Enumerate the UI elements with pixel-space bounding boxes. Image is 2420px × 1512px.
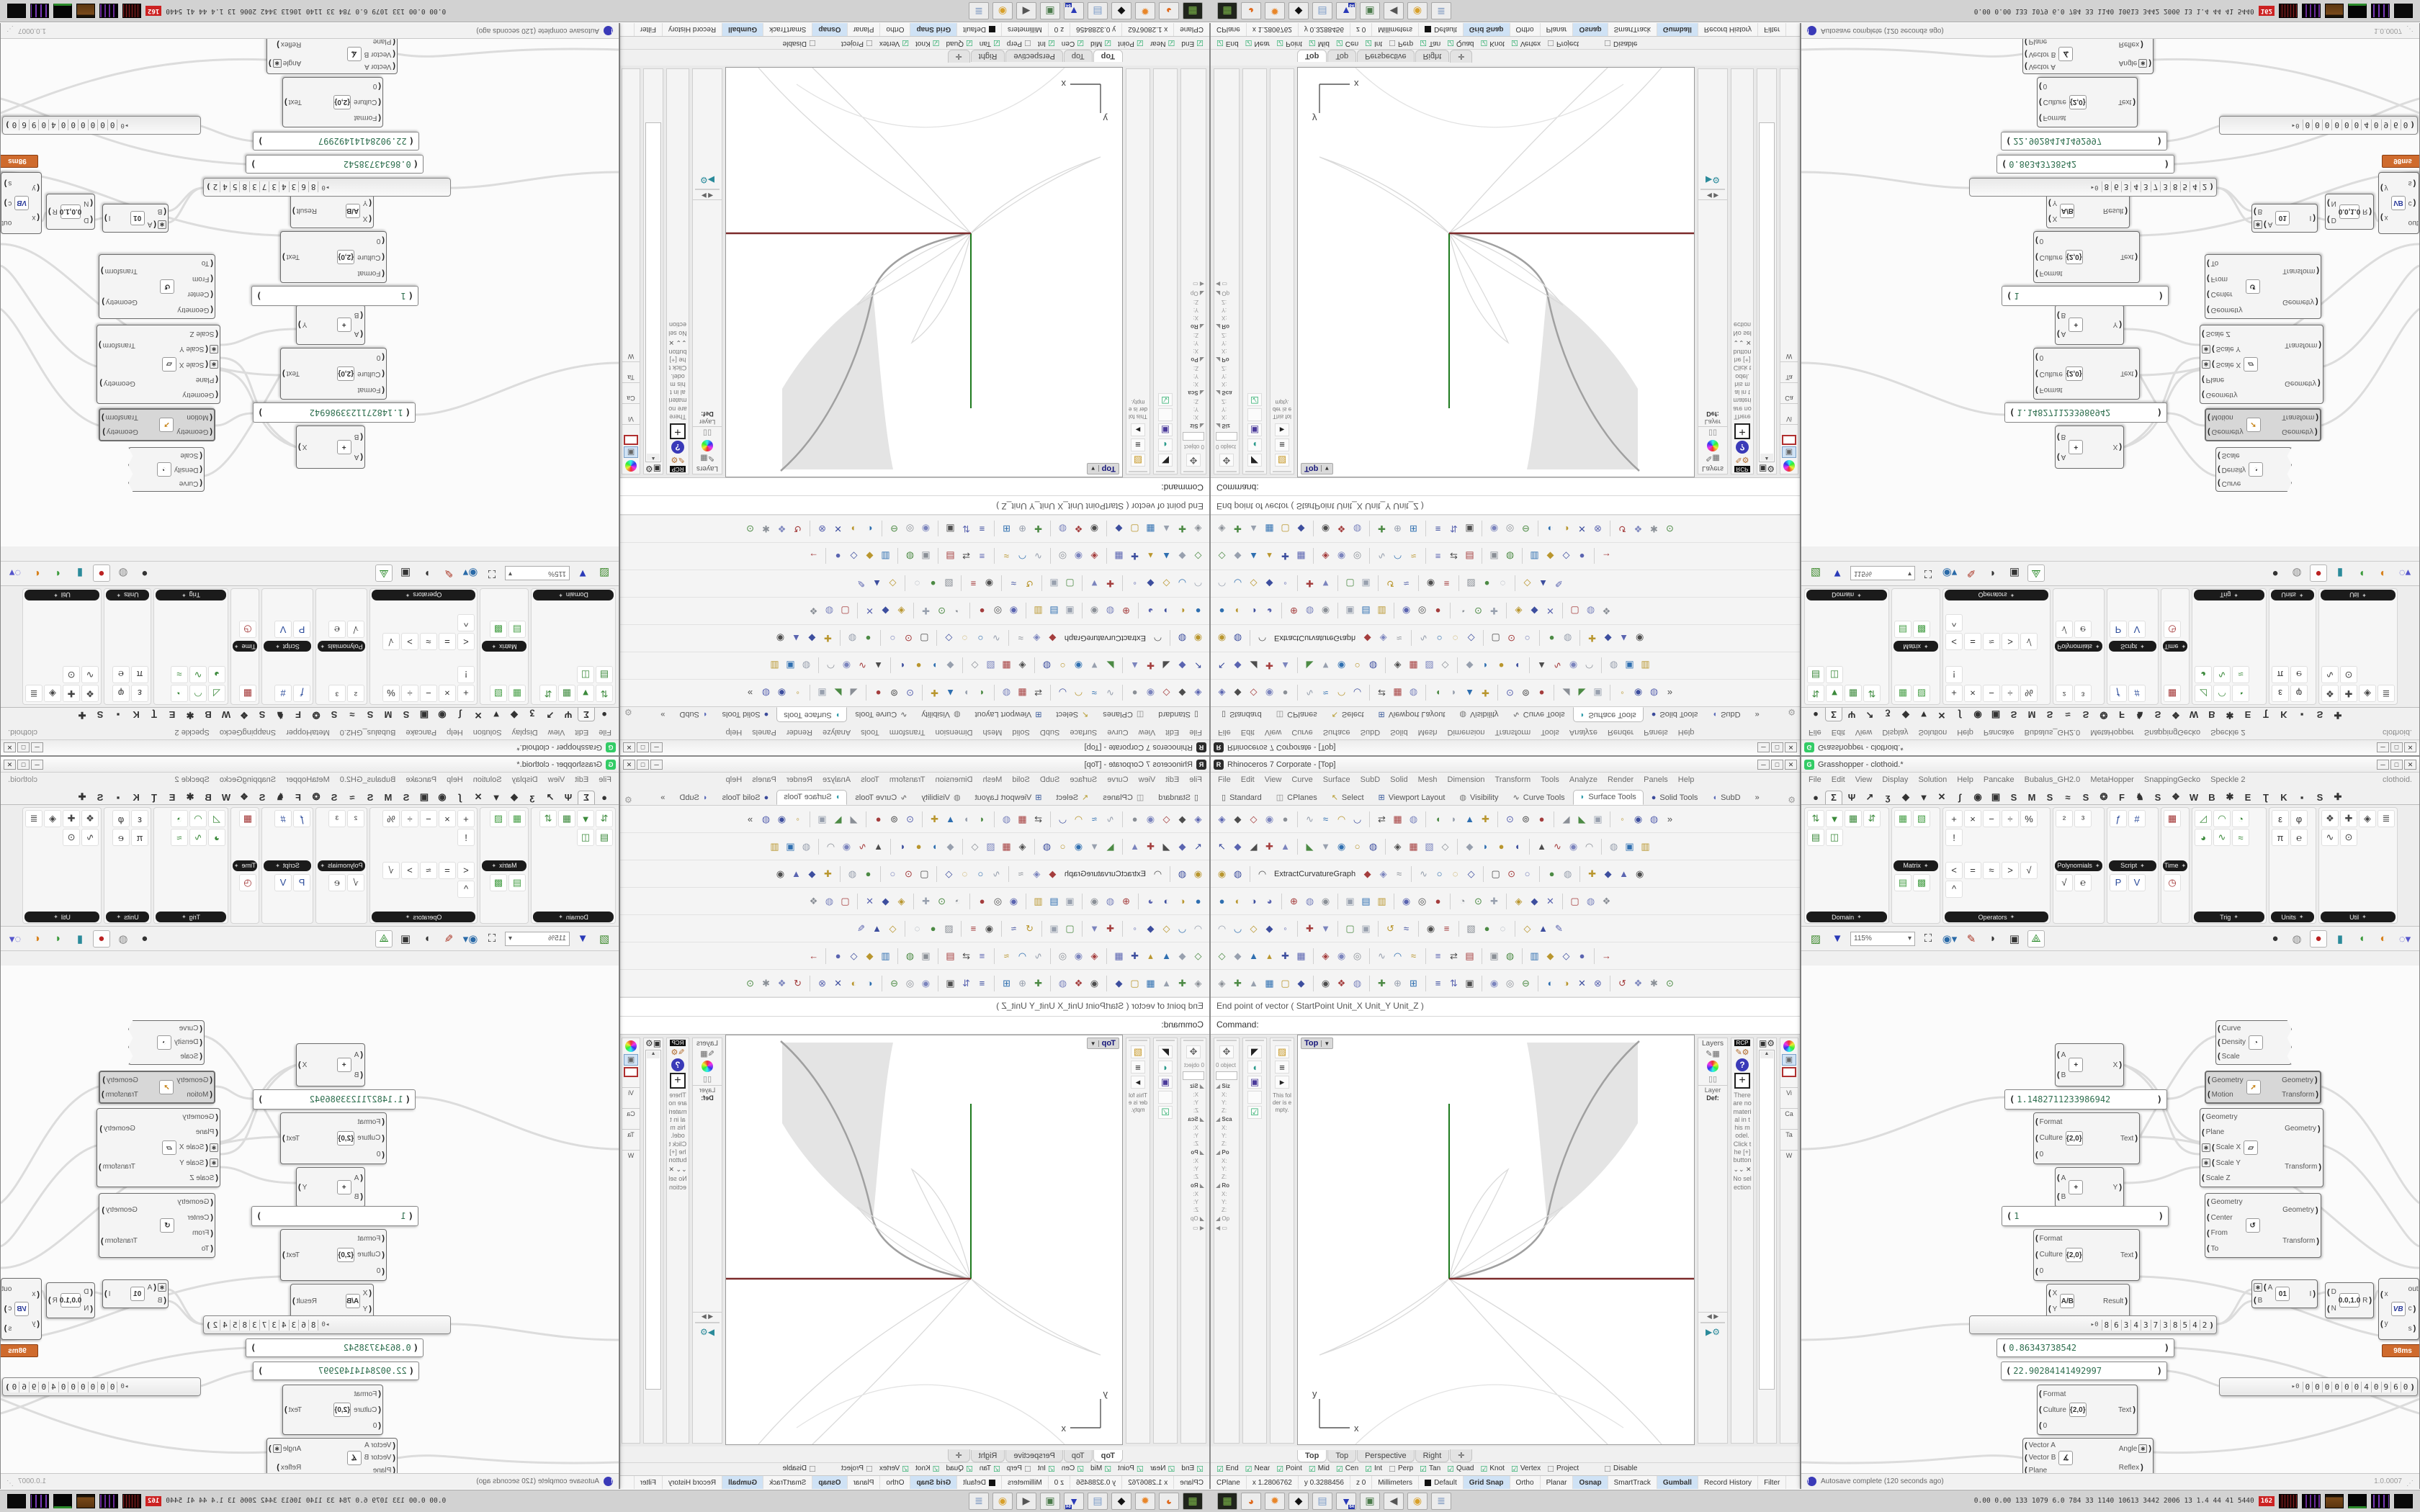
input-port[interactable]: ( [2039,98,2042,107]
menu-item-curve[interactable]: Curve [1107,775,1128,784]
toolbar-icon[interactable]: ▦ [1000,659,1013,672]
status-ortho[interactable]: Ortho [1510,1476,1541,1490]
toolbar-icon[interactable]: ◆ [1175,949,1189,963]
toolbar-icon[interactable]: ✚ [919,894,933,908]
input-port[interactable]: ( [2048,1305,2051,1313]
gh-tab-16[interactable]: ❂ [2095,791,2112,804]
expand-right-icon[interactable]: ▸ [1275,423,1289,436]
osnap-toggle-quad[interactable]: ☑Quad [946,1464,973,1474]
education-icon[interactable]: ◤ [1247,454,1262,467]
toolbar-icon[interactable]: ◇ [1160,812,1173,826]
toolbar-icon[interactable]: ▲ [1535,659,1549,672]
toolbar-icon[interactable]: ◆ [1112,522,1126,536]
input-port[interactable]: ( [360,1050,363,1059]
toolbar-icon[interactable]: ◗ [959,686,973,700]
toolbar-icon[interactable]: ◆ [1543,949,1557,963]
output-port[interactable]: ) [256,1211,261,1221]
camera-prop-icon[interactable]: ▣ [624,446,638,458]
node-rotate[interactable]: (Geometry(Center(From(To↺Geometry)Transf… [2205,254,2321,319]
toolbar-icon[interactable]: ▤ [1463,949,1476,963]
toolbar-icon[interactable]: ▣ [1623,659,1636,672]
toolbar-icon[interactable]: ◍ [1040,840,1054,853]
toolbar-gear-icon[interactable]: ⚙ [624,795,632,805]
toolbar-icon[interactable]: ✚ [1303,922,1317,935]
osnap-toggle-tan[interactable]: ☑Tan [980,38,1000,48]
red-rect-icon[interactable] [1782,1067,1796,1077]
boxedit-panel[interactable]: ✥ 0 object ◢ SizX:Y:Z:◢ ScaX:Y:Z:◢ PoX:Y… [1180,68,1206,474]
options-section[interactable]: ◢ Op [1181,1214,1206,1223]
input-port[interactable]: ( [2039,114,2042,122]
status-y-0-3288456[interactable]: y 0.3288456 [1070,22,1121,36]
input-port[interactable]: ( [369,1289,372,1297]
toolbar-icon[interactable]: ⊕ [1391,976,1404,990]
component-icon[interactable]: − [1983,685,2000,702]
status-y-0-3288456[interactable]: y 0.3288456 [1299,1476,1350,1490]
maximize-button[interactable]: □ [1771,743,1783,753]
save-file-icon[interactable]: ▼ [574,565,591,582]
folder-icon[interactable]: ▨ [1275,454,1289,467]
close-button[interactable]: ✕ [4,743,16,753]
component-icon[interactable]: ▦ [508,685,526,702]
input-port[interactable]: ( [90,1305,93,1313]
toolbar-icon[interactable]: ▧ [942,922,956,935]
layer-tools-icons[interactable]: ✎▦ [1698,454,1727,463]
gh-tab-17[interactable]: F [290,791,307,804]
component-icon[interactable]: ◷ [2164,621,2181,639]
node-rotate[interactable]: (Geometry(Center(From(To↺Geometry)Transf… [99,1193,215,1258]
input-port[interactable]: ( [2202,390,2205,399]
toolbar-icon[interactable]: ≡ [975,949,989,963]
toolbar-tab-»[interactable]: » [1749,707,1766,721]
toolbar-icon[interactable]: ◈ [1191,522,1205,536]
toolbar-icon[interactable]: ◆ [1046,867,1059,881]
properties-sliver-panel[interactable]: ▣ ViCaTaW [1780,68,1798,474]
panel-value-c[interactable]: (0.86343738542) [246,155,423,174]
boxedit-panel[interactable]: ✥ 0 object ◢ SizX:Y:Z:◢ ScaX:Y:Z:◢ PoX:Y… [1180,1038,1206,1444]
toolbar-icon[interactable]: ▲ [944,686,957,700]
menu-item-view[interactable]: View [1265,775,1282,784]
properties-sliver-panel[interactable]: ▣ ViCaTaW [622,68,640,474]
layer-pages-icon[interactable]: ▯▯ [1698,1074,1727,1084]
toolbar-icon[interactable]: ◈ [1088,949,1101,963]
toolbar-icon[interactable]: ⊕ [1016,976,1029,990]
component-icon[interactable]: ◕ [208,666,225,683]
toolbar-icon[interactable]: ≈ [1000,549,1013,563]
prop-section-ta[interactable]: Ta [622,1129,640,1140]
component-body-icon[interactable]: {2,0} [333,1403,351,1417]
toolbar-icon[interactable]: ◑ [1160,604,1173,618]
toolbar-icon[interactable]: ⊙ [1471,894,1485,908]
viewport-top[interactable]: Top ▼ [1297,1035,1695,1445]
slider-digit[interactable]: 4 [2190,1320,2200,1331]
toolbar-icon[interactable]: ◉ [1319,976,1332,990]
component-icon[interactable]: ▦ [239,810,256,827]
toolbar-icon[interactable]: ◇ [1191,549,1205,563]
output-port[interactable]: ) [2410,1382,2415,1392]
hamburger-icon[interactable]: ≡ [1275,1061,1289,1074]
component-icon[interactable]: ℮ [112,666,130,683]
dome-icon[interactable]: ◖ [1158,438,1173,451]
toolbar-icon[interactable]: ◇ [1160,686,1173,700]
input-port[interactable]: ( [210,428,212,436]
component-icon[interactable]: ◷ [239,621,256,639]
toolbar-icon[interactable]: ✚ [1128,949,1142,963]
camera-panel-icon[interactable]: ▶⚙ [1698,175,1727,185]
toolbar-tab-standard[interactable]: ▯Standard [1215,707,1268,721]
layer-color-wheel-icon[interactable] [1707,1061,1718,1072]
toolbar-icon[interactable]: ✚ [1144,840,1157,853]
component-body-icon[interactable]: A/B [2060,204,2074,218]
section-sca[interactable]: ◢ Sca [1214,1115,1239,1124]
slider-digit[interactable]: 3 [2121,1320,2131,1331]
input-port[interactable]: ( [210,305,213,314]
monitor-icon[interactable]: ▣⚙ [1757,1038,1776,1048]
toolbar-icon[interactable]: ▢ [1063,577,1077,590]
output-port[interactable]: ) [99,341,102,350]
output-port[interactable]: ) [2414,199,2416,207]
output-port[interactable]: ) [2119,443,2122,451]
toolbar-icon[interactable]: ⇄ [1447,949,1461,963]
input-port[interactable]: ( [382,236,385,245]
toolbar-icon[interactable]: ▼ [1088,659,1101,672]
toolbar-icon[interactable]: ◣ [1303,840,1317,853]
slider-digit[interactable]: 3 [290,182,300,193]
toolbar-icon[interactable]: ❖ [1335,976,1348,990]
toolbar-icon[interactable]: ◉ [1144,812,1157,826]
toolbar-icon[interactable]: ▣ [1359,577,1373,590]
input-port[interactable]: ( [215,1174,218,1182]
toolbar-icon[interactable]: ▥ [768,840,781,853]
toolbar-icon[interactable]: ● [1191,604,1205,618]
node-angle[interactable]: (Vector A(Vector B(Plane∡Angle✱)Reflex) [266,1438,398,1473]
input-port[interactable]: ( [2025,1441,2027,1450]
red-rect-icon[interactable] [1782,435,1796,445]
panel-grip[interactable] [1216,469,1237,472]
component-icon[interactable]: ▤ [1807,666,1824,683]
osnap-toggle-vertex[interactable]: ☑Vertex [879,1464,909,1474]
toolbar-icon[interactable]: ↖ [1215,659,1229,672]
toolbar-icon[interactable]: » [1663,812,1677,826]
status-planar[interactable]: Planar [1541,1476,1574,1490]
gh-tab-11[interactable]: S [2005,791,2022,804]
input-port[interactable]: ( [215,1128,218,1137]
toolbar-icon[interactable]: ✚ [1263,659,1276,672]
component-icon[interactable]: ▩ [490,874,507,891]
osnap-toggle-near[interactable]: ☑Near [1150,1464,1175,1474]
toolbar-icon[interactable]: ◦ [1128,922,1142,935]
toolbar-icon[interactable]: ◑ [1247,894,1260,908]
toolbar-icon[interactable]: ⇄ [1447,549,1461,563]
status-millimeters[interactable]: Millimeters [1372,22,1419,36]
status-gumball[interactable]: Gumball [722,1476,763,1490]
output-port[interactable]: ) [2157,136,2162,146]
toolbar-icon[interactable]: ◈ [1088,549,1101,563]
toolbar-tab-select[interactable]: ↖Select [1050,707,1095,721]
toolbar-icon[interactable]: ◈ [1512,894,1525,908]
input-port[interactable]: ( [2025,1454,2027,1462]
toolbar-icon[interactable]: ↖ [1215,840,1229,853]
menu-item-subd[interactable]: SubD [1361,728,1381,737]
menu-item-display[interactable]: Display [1882,728,1908,737]
toolbar-icon[interactable]: ◡ [1056,812,1070,826]
toolbar-icon[interactable]: ◆ [1263,922,1276,935]
toolbar-tab-surface-tools[interactable]: ◗Surface Tools [776,790,847,805]
solid-teal-icon[interactable]: ▮ [2331,930,2349,948]
toolbar-icon[interactable]: ▼ [1319,840,1332,853]
node-move[interactable]: (Geometry(Motion➚Geometry)Transform) [2205,408,2321,441]
toolbar-icon[interactable]: ▴ [1263,549,1276,563]
component-icon[interactable]: ÷ [401,685,418,702]
toolbar-icon[interactable]: ◡ [1350,812,1364,826]
ribbon-group-label[interactable]: Polynomials✦ [318,860,365,871]
toolbar-icon[interactable]: ▧ [1464,922,1478,935]
toolbar-icon[interactable]: ▦ [1263,522,1276,536]
output-port[interactable]: ) [2410,121,2415,130]
panel-grip[interactable] [1216,1040,1237,1043]
toolbar-icon[interactable]: ◇ [886,922,900,935]
viewport-tab-✛[interactable]: ✛ [948,50,970,63]
toolbar-icon[interactable]: ▣ [1063,604,1077,618]
input-port[interactable]: ( [215,330,218,338]
toolbar-icon[interactable]: ◆ [1528,894,1541,908]
toolbar-icon[interactable]: ◉ [1088,894,1101,908]
solid-orange-icon[interactable]: ◐ [2375,930,2392,948]
panel-value-b[interactable]: (1) [2002,1206,2169,1226]
node-text-format-3[interactable]: (Format(Culture(0{2,0}Text) [2037,77,2138,127]
component-icon[interactable]: ^ [457,881,475,898]
gh-tab-16[interactable]: ❂ [2095,708,2112,721]
toolbar-icon[interactable]: ● [975,604,989,618]
toolbar-icon[interactable]: ⊕ [1119,604,1133,618]
toolbar-icon[interactable]: ● [1535,686,1549,700]
toolbar-icon[interactable]: ✕ [1543,604,1557,618]
gh-tab-10[interactable]: ▣ [1987,791,2004,804]
display-icon[interactable]: ▣ [1040,3,1060,20]
component-body-icon[interactable]: ↺ [2246,1218,2260,1233]
input-port[interactable]: ( [378,1390,381,1398]
preview-shaded-icon[interactable]: ● [2310,930,2327,948]
dome-icon[interactable]: ◖ [1247,438,1262,451]
toolbar-icon[interactable]: ◉ [1215,631,1229,645]
gh-tab-6[interactable]: ▼ [488,708,505,721]
gh-tab-2[interactable]: Ψ [1843,791,1860,804]
toolbar-icon[interactable]: ▲ [789,867,803,881]
menu-item-dimension[interactable]: Dimension [1448,728,1485,737]
component-icon[interactable]: ❖ [81,685,99,702]
menu-item-dimension[interactable]: Dimension [1448,775,1485,784]
input-port[interactable]: ( [382,1117,385,1126]
gh-tab-28[interactable]: S [91,708,109,721]
status-x-1-2806762[interactable]: x 1.2806762 [1247,22,1299,36]
status-ortho[interactable]: Ortho [879,1476,910,1490]
gh-tab-19[interactable]: S [2149,791,2166,804]
toolbar-icon[interactable]: ◉ [1072,949,1085,963]
toolbar-icon[interactable]: ❖ [1072,976,1085,990]
toolbar-icon[interactable]: ✚ [1487,894,1501,908]
component-icon[interactable]: ℮ [112,829,130,846]
component-icon[interactable]: ε [2272,685,2289,702]
toolbar-icon[interactable]: ▲ [1247,976,1260,990]
toolbar-tab-cplanes[interactable]: ◫CPlanes [1270,791,1324,805]
pad-icon[interactable]: ▦ [1217,1493,1237,1510]
open-file-icon[interactable]: ▨ [596,930,613,948]
menu-item-solution[interactable]: Solution [1918,775,1947,784]
ribbon-group-label[interactable]: Polynomials✦ [2055,860,2102,871]
toolbar-icon[interactable]: ◍ [846,867,859,881]
toolbar-icon[interactable]: ▲ [1536,922,1550,935]
input-port[interactable]: ( [2207,1229,2210,1238]
toolbar-icon[interactable]: ◠ [1391,949,1404,963]
menu-item-subd[interactable]: SubD [1040,728,1060,737]
gh-tab-13[interactable]: S [2041,791,2058,804]
output-port[interactable]: ) [298,1183,301,1192]
gh-tab-2[interactable]: Ψ [1843,708,1860,721]
slider-digit[interactable]: 5 [2180,1320,2190,1331]
toolbar-tab-surface-tools[interactable]: ◗Surface Tools [1573,707,1644,722]
output-port[interactable]: ) [206,183,211,192]
component-icon[interactable]: ∿ [189,666,207,683]
toolbar-icon[interactable]: ◆ [1263,577,1276,590]
dome-icon[interactable]: ◖ [1158,1061,1173,1074]
toolbar-icon[interactable]: ◉ [1072,840,1085,853]
component-icon[interactable]: ε [131,810,148,827]
component-icon[interactable]: ≣ [25,685,42,702]
input-port[interactable]: ( [2207,274,2210,283]
toolbar-icon[interactable]: ▥ [879,949,892,963]
menu-item-file[interactable]: File [599,728,611,737]
node-text-format-2[interactable]: (Format(Culture(0{2,0}Text) [280,1229,387,1281]
viewport-tab-✛[interactable]: ✛ [948,1449,970,1462]
gh-tab-15[interactable]: S [326,791,343,804]
component-icon[interactable]: ⇵ [539,810,557,827]
red-rect-icon[interactable] [624,1067,638,1077]
toolbar-tab-select[interactable]: ↖Select [1325,707,1371,721]
toolbar-icon[interactable]: ◇ [1160,922,1173,935]
toolbar-icon[interactable]: ▲ [871,659,885,672]
input-port[interactable]: ( [2006,1366,2011,1376]
toolbar-icon[interactable]: ◠ [1016,949,1029,963]
node-gate[interactable]: ✱(A(B01I) [102,1279,169,1308]
gh-tab-15[interactable]: S [2077,708,2094,721]
toolbar-icon[interactable]: ▥ [1375,604,1389,618]
toolbar-icon[interactable]: ◍ [799,840,813,853]
toolbar-icon[interactable]: ◉ [1191,631,1205,645]
node-remap[interactable]: (D(N0.0,1.0R) [2325,194,2374,230]
toolbar-icon[interactable]: ▼ [1319,659,1332,672]
toolbar-icon[interactable]: ≡ [967,577,980,590]
slider-digit[interactable]: 0 [89,120,99,131]
toolbar-icon[interactable]: ◍ [1000,686,1013,700]
materials-panel[interactable]: RCP ✎⚙ ? + There are no material in this… [666,68,689,474]
component-icon[interactable]: ◕ [2195,829,2212,846]
toolbar-icon[interactable]: ❖ [775,976,789,990]
display-listbox[interactable]: ▲ [1759,122,1775,462]
gh-tab-11[interactable]: S [398,708,415,721]
component-icon[interactable]: ∿ [2321,666,2339,683]
component-icon[interactable]: ◔ [2232,810,2249,827]
toolbar-icon[interactable]: ▦ [1112,549,1126,563]
component-icon[interactable]: < [457,634,475,651]
output-port[interactable]: ) [48,1296,51,1305]
gh-tab-24[interactable]: E [163,791,181,804]
toolbar-icon[interactable]: ◉ [775,812,789,826]
osnap-toggle-knot[interactable]: ☑Knot [915,1464,939,1474]
toolbar-icon[interactable]: ◍ [1040,659,1054,672]
toolbar-icon[interactable]: ▧ [942,577,956,590]
toolbar-icon[interactable]: ⊙ [902,867,915,881]
toolbar-icon[interactable]: ◗ [1479,659,1492,672]
ribbon-group-label[interactable]: Operators✦ [1945,590,2048,600]
expression-star-icon[interactable]: ✱ [158,220,166,229]
slider-digit[interactable]: 0 [2341,120,2352,131]
toolbar-icon[interactable]: ✚ [821,631,835,645]
toolbar-icon[interactable]: ≈ [1007,922,1021,935]
prop-section-ca[interactable]: Ca [622,393,640,404]
toolbar-icon[interactable]: ◎ [991,894,1005,908]
toolbar-icon[interactable]: ◐ [1543,522,1557,536]
input-port[interactable]: ( [2035,253,2038,261]
component-body-icon[interactable]: {2,0} [2069,95,2087,109]
menu-item-snappinggecko[interactable]: SnappingGecko [2144,728,2200,737]
toolbar-icon[interactable]: ◆ [1231,686,1245,700]
input-port[interactable]: ( [90,216,93,225]
gh-tab-22[interactable]: B [2203,791,2220,804]
component-icon[interactable]: = [1964,634,1981,651]
component-body-icon[interactable]: ▱ [2244,1140,2258,1155]
input-port[interactable]: ( [378,114,381,122]
toolbar-icon[interactable]: ◍ [1584,604,1597,618]
toolbar-icon[interactable]: ◠ [1215,577,1229,590]
toolbar-icon[interactable]: ≈ [1319,686,1332,700]
panel-grip[interactable] [1183,1040,1204,1043]
input-port[interactable]: ( [2035,353,2038,361]
toolbar-icon[interactable]: ▥ [1639,840,1652,853]
solid-green-icon[interactable]: ◖ [50,930,67,948]
toolbar-icon[interactable]: ◗ [1479,840,1492,853]
menu-item-pancake[interactable]: Pancake [405,728,436,737]
component-body-icon[interactable]: {2,0} [2066,366,2083,381]
menu-item-snappinggecko[interactable]: SnappingGecko [220,775,276,784]
toolbar-icon[interactable]: → [807,549,820,563]
component-icon[interactable]: ≈ [1983,634,2000,651]
menu-item-snappinggecko[interactable]: SnappingGecko [2144,775,2200,784]
gh-tab-2[interactable]: Ψ [560,791,577,804]
output-port[interactable]: ) [292,207,295,215]
component-icon[interactable]: ◿ [2195,685,2212,702]
output-port[interactable]: ) [2316,267,2319,276]
input-port[interactable]: ( [2035,386,2038,395]
gh-tab-8[interactable]: ʃ [1951,708,1968,721]
component-icon[interactable]: ∿ [2321,829,2339,846]
toolbar-tab-curve-tools[interactable]: ∿Curve Tools [1507,791,1572,805]
toolbar-icon[interactable]: ◇ [1438,840,1452,853]
toolbar-icon[interactable]: ◆ [1046,631,1059,645]
folder-icon[interactable]: ▨ [1275,1045,1289,1058]
output-port[interactable]: ) [2133,1405,2136,1414]
toolbar-icon[interactable]: ◉ [1631,812,1645,826]
node-angle[interactable]: (Vector A(Vector B(Plane∡Angle✱)Reflex) [2022,1438,2154,1473]
osnap-toggle-project[interactable]: ☐Project [841,1464,873,1474]
section-siz[interactable]: ◢ Siz [1181,1081,1206,1091]
input-port[interactable]: ( [2218,1038,2220,1047]
component-icon[interactable]: √ [347,621,364,639]
input-port[interactable]: ( [2218,479,2220,487]
toolbar-icon[interactable]: ◔ [951,894,964,908]
resize-grip[interactable]: ⋰ [6,29,14,32]
preview-off-icon[interactable]: ● [2267,930,2284,948]
slider-digit[interactable]: 8 [309,1320,319,1331]
status-gumball[interactable]: Gumball [722,22,763,36]
